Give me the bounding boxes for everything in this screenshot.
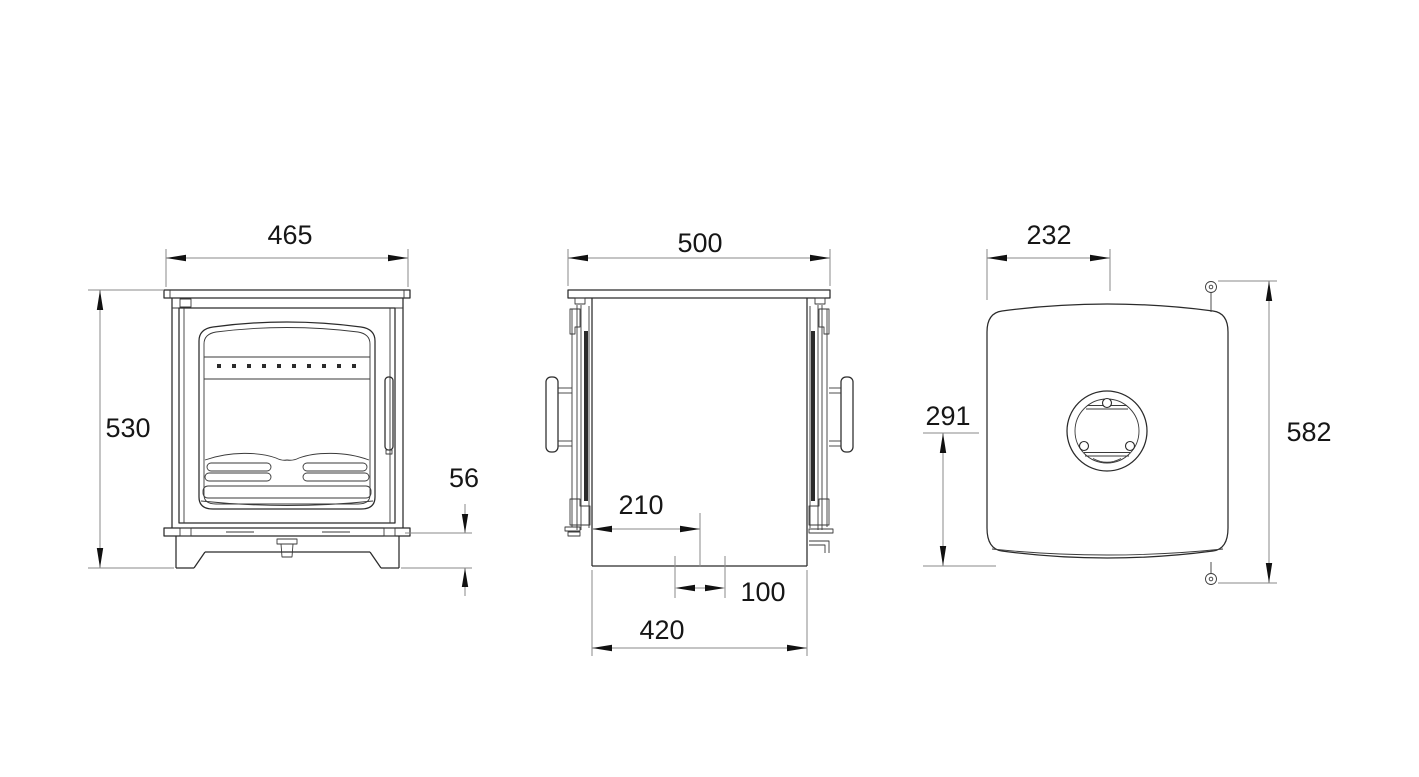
drawing-canvas: 465 530 56 [0, 0, 1419, 777]
side-handle-rear [829, 377, 853, 452]
top-body-outline [987, 304, 1228, 558]
dim-label-500: 500 [677, 228, 722, 258]
side-handle-front [546, 377, 572, 452]
air-vent-band [204, 357, 370, 379]
dim-label-291: 291 [925, 401, 970, 431]
flue-screw-top [1103, 399, 1112, 408]
dim-label-530: 530 [105, 413, 150, 443]
side-top-plate [568, 290, 830, 304]
stove-base [176, 536, 399, 568]
side-view: 500 210 100 420 [546, 228, 853, 656]
air-vent-holes [217, 364, 356, 368]
dimension-base-height: 56 [401, 463, 479, 596]
stove-body [172, 298, 403, 528]
flue-screw-left [1080, 442, 1089, 451]
dim-label-100: 100 [740, 577, 785, 607]
door-latch [180, 299, 191, 307]
stove-dimension-drawing: 465 530 56 [0, 0, 1419, 777]
side-rear-edge [807, 298, 833, 566]
stove-top-plate [164, 290, 410, 298]
dimension-flue-center: 232 [987, 220, 1110, 300]
front-view: 465 530 56 [88, 220, 479, 596]
dimension-flue-offset: 210 [592, 490, 700, 532]
fire-grate [201, 453, 373, 505]
ash-lip [203, 486, 371, 498]
side-front-edge [565, 298, 592, 566]
dimension-front-height: 530 [88, 290, 174, 568]
flue-screw-right [1126, 442, 1135, 451]
dimension-flue-width: 100 [675, 556, 786, 607]
bottom-trim [164, 528, 410, 536]
flue-collar [1067, 391, 1147, 471]
door-handle-front [385, 377, 393, 454]
dim-label-582: 582 [1286, 417, 1331, 447]
dim-label-56: 56 [449, 463, 479, 493]
dim-label-210: 210 [618, 490, 663, 520]
dimension-depth: 500 [568, 228, 830, 286]
dim-label-465: 465 [267, 220, 312, 250]
top-view: 232 291 582 [923, 220, 1332, 585]
dim-label-420: 420 [639, 615, 684, 645]
dimension-front-width: 465 [166, 220, 408, 287]
dimension-flue-to-rear: 291 [923, 401, 996, 566]
handle-pin-bottom [1206, 562, 1217, 585]
dim-label-232: 232 [1026, 220, 1071, 250]
dimension-overall-depth: 582 [1218, 281, 1332, 583]
stove-door [179, 308, 395, 523]
handle-pin-top [1206, 282, 1217, 313]
base-knob [277, 539, 297, 557]
